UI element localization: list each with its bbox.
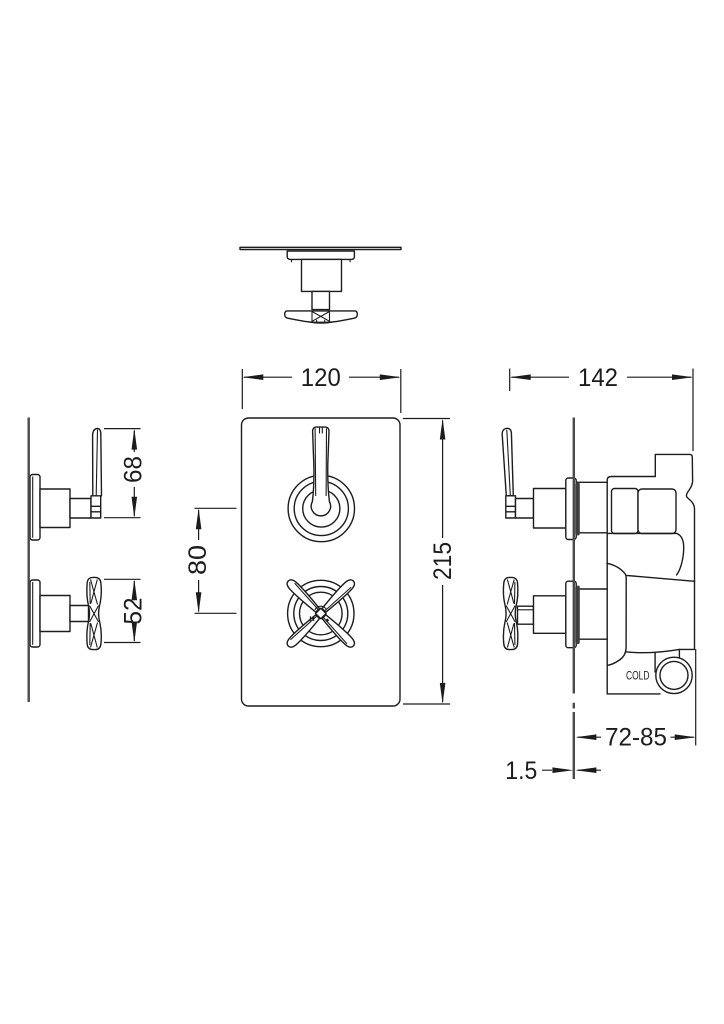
- svg-text:215: 215: [429, 542, 457, 580]
- svg-text:52: 52: [120, 598, 148, 625]
- svg-text:72-85: 72-85: [605, 724, 667, 752]
- svg-text:80: 80: [184, 545, 212, 575]
- svg-text:COLD: COLD: [626, 671, 650, 683]
- svg-text:68: 68: [120, 456, 148, 483]
- svg-text:120: 120: [301, 364, 341, 392]
- svg-text:142: 142: [578, 364, 618, 392]
- svg-text:1.5: 1.5: [505, 757, 537, 785]
